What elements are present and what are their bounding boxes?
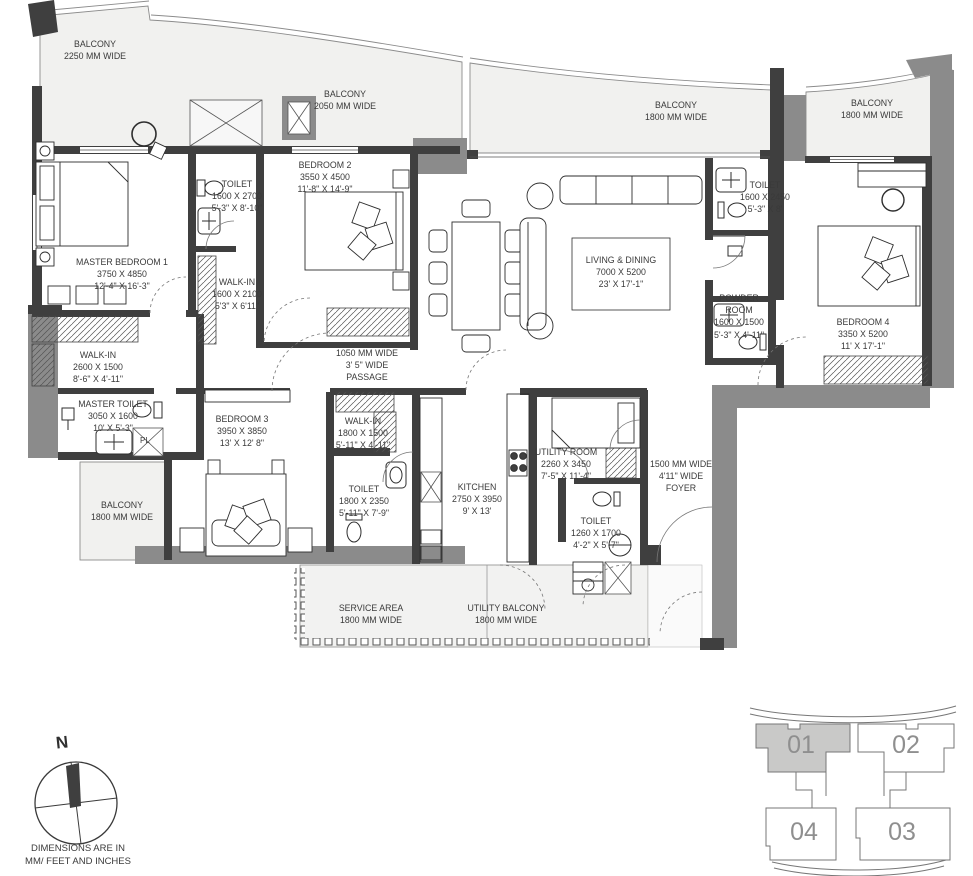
label-bedroom2: BEDROOM 2 3550 X 4500 11'-8" X 14'-9": [298, 159, 353, 196]
label-walkin2: WALK-IN 2600 X 1500 8'-6" X 4'-11": [73, 349, 123, 386]
label-toilet-bed4: TOILET 1600 X 2450 5'-3" X 8': [740, 179, 790, 216]
dimensions-note: DIMENSIONS ARE IN MM/ FEET AND INCHES: [25, 842, 131, 868]
label-balcony-bed2: BALCONY 2050 MM WIDE: [314, 88, 376, 112]
label-passage: 1050 MM WIDE 3' 5" WIDE PASSAGE: [336, 347, 398, 384]
label-living-dining: LIVING & DINING 7000 X 5200 23' X 17'-1": [586, 254, 656, 291]
label-balcony-living: BALCONY 1800 MM WIDE: [645, 99, 707, 123]
label-walkin3: WALK-IN 1800 X 1500 5'-11" X 4'-11": [336, 415, 390, 452]
label-utility-balcony: UTILITY BALCONY 1800 MM WIDE: [467, 602, 544, 626]
label-kitchen: KITCHEN 2750 X 3950 9' X 13': [452, 481, 502, 518]
compass: [35, 762, 117, 844]
label-toilet-master-bed: TOILET 1600 X 2700 5'-3" X 8'-10": [212, 178, 263, 215]
label-walkin-master: WALK-IN 1600 X 2100 5'3" X 6'11": [212, 276, 262, 313]
compass-needle: [66, 763, 81, 808]
keyplan-unit-01-number: 01: [787, 731, 815, 760]
label-master-bedroom: MASTER BEDROOM 1 3750 X 4850 12'-4" X 16…: [76, 256, 168, 293]
keyplan-unit-02-number: 02: [892, 731, 920, 760]
label-bedroom3: BEDROOM 3 3950 X 3850 13' X 12' 8": [216, 413, 269, 450]
label-foyer: 1500 MM WIDE 4'11" WIDE FOYER: [650, 458, 712, 495]
floorplan-page: BALCONY 2250 MM WIDE BALCONY 2050 MM WID…: [0, 0, 973, 876]
label-toilet-utility: TOILET 1260 X 1700 4'-2" X 5'-7": [571, 515, 621, 552]
label-toilet3: TOILET 1800 X 2350 5'-11" X 7'-9": [339, 483, 389, 520]
keyplan-unit-04-number: 04: [790, 818, 818, 847]
label-powder-room: POWDER ROOM 1600 X 1500 5'-3" X 4'-11": [714, 292, 764, 341]
keyplan-unit-03-number: 03: [888, 818, 916, 847]
label-service-area: SERVICE AREA 1800 MM WIDE: [339, 602, 403, 626]
compass-north-label: N: [55, 732, 69, 753]
label-utility-room: UTILITY ROOM 2260 X 3450 7'-5" X 11'-4": [535, 446, 597, 483]
label-bedroom4: BEDROOM 4 3350 X 5200 11' X 17'-1": [837, 316, 890, 353]
label-balcony-master: BALCONY 2250 MM WIDE: [64, 38, 126, 62]
label-pl-shaft: PL: [140, 436, 150, 445]
label-master-toilet: MASTER TOILET 3050 X 1600 10' X 5'-3": [78, 398, 148, 435]
label-balcony-bed4: BALCONY 1800 MM WIDE: [841, 97, 903, 121]
label-balcony-bed3: BALCONY 1800 MM WIDE: [91, 499, 153, 523]
keyplan: [750, 706, 956, 876]
